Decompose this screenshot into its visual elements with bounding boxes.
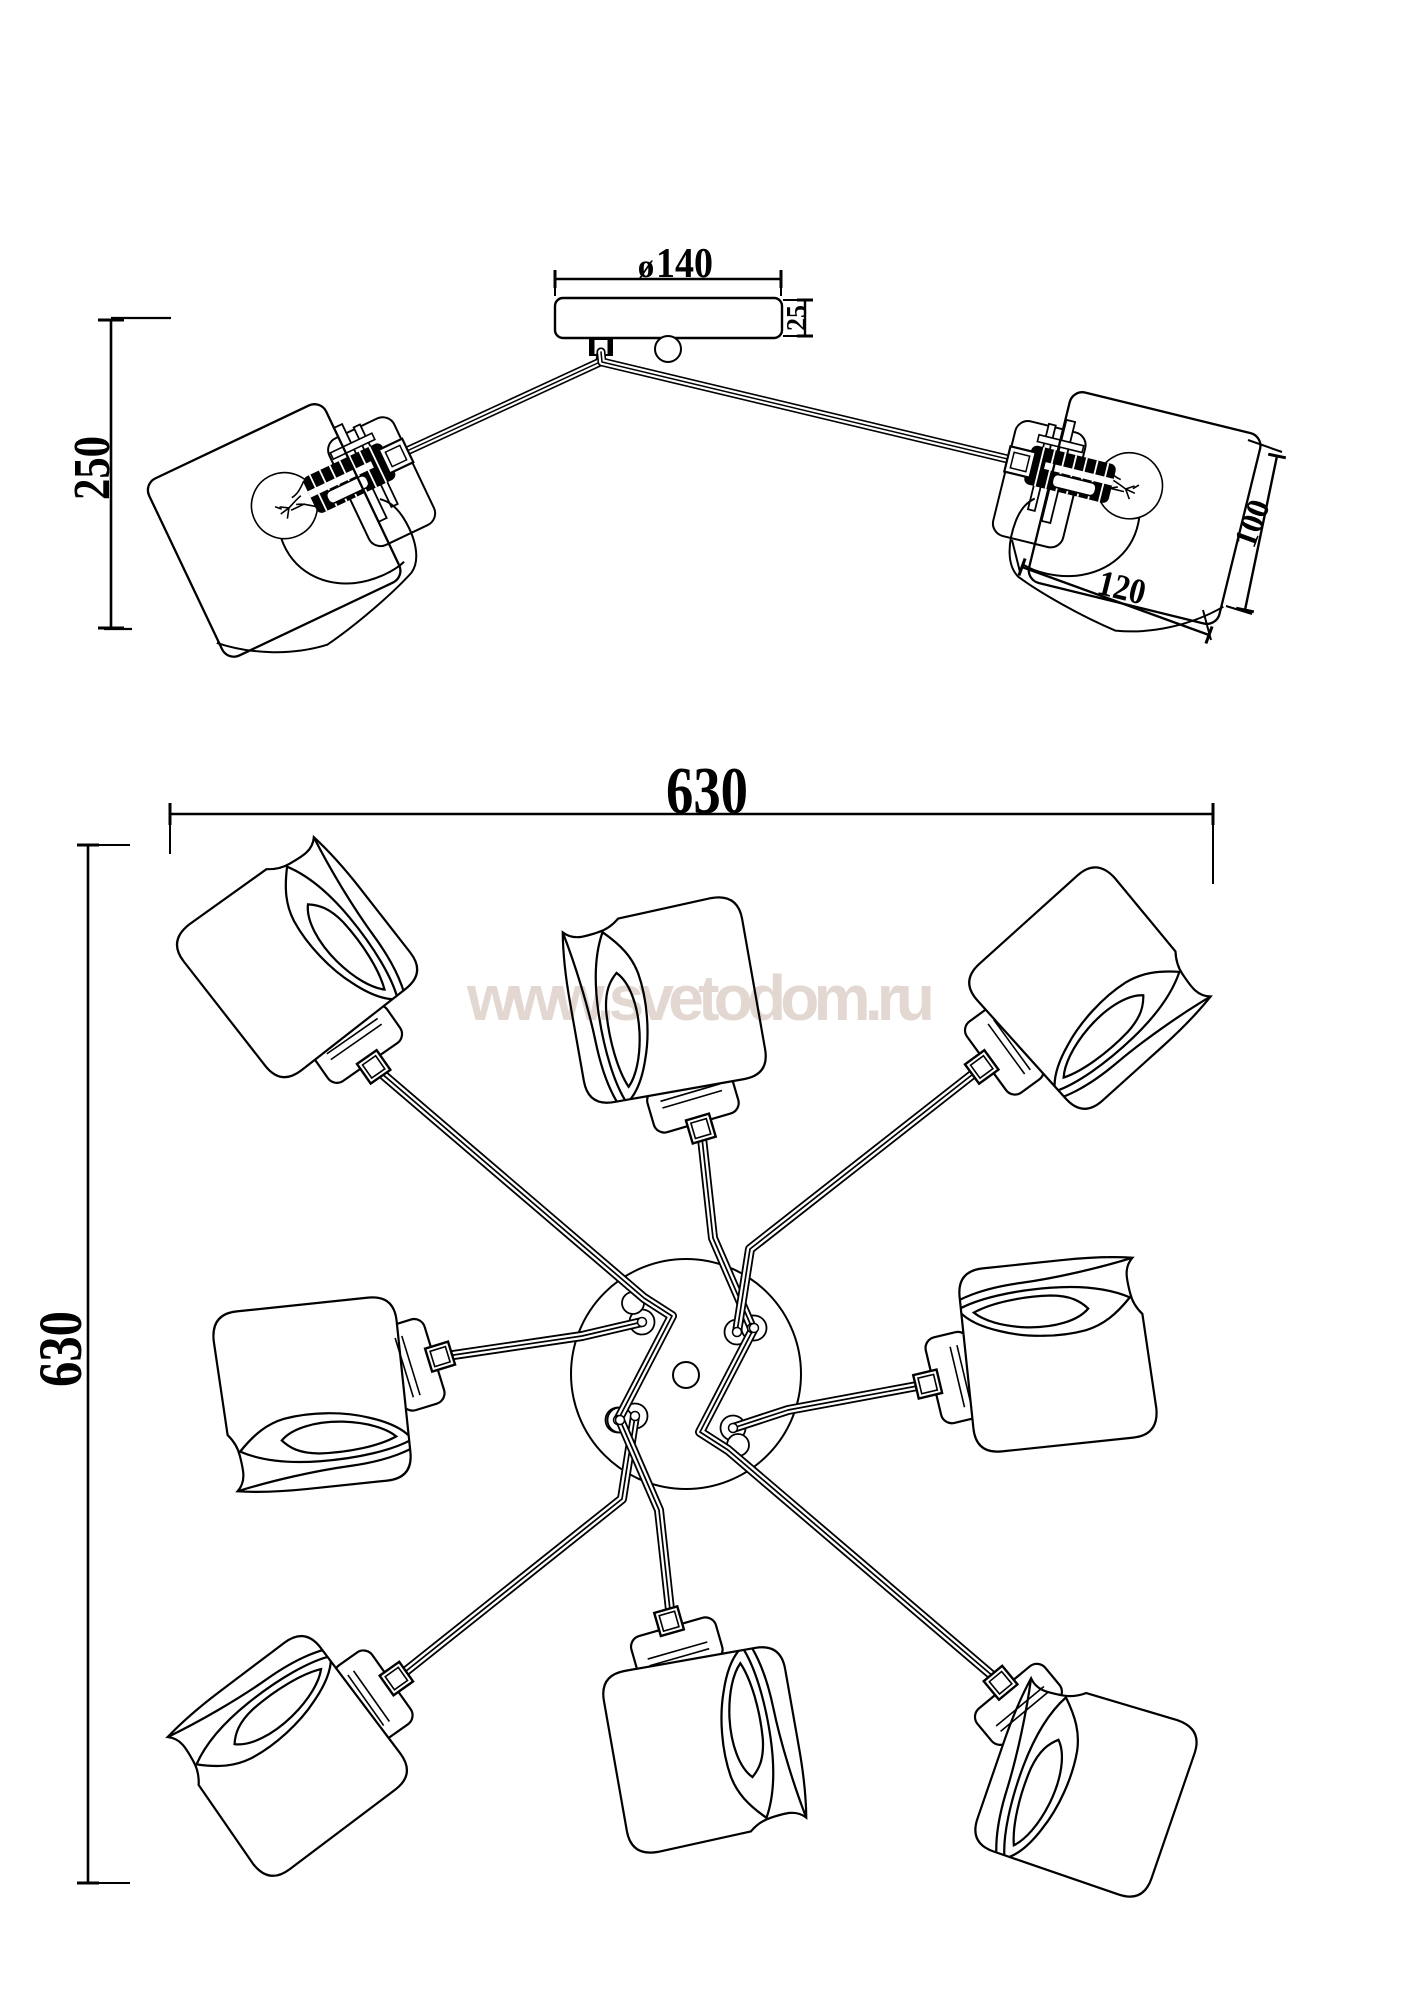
- svg-text:25: 25: [781, 305, 813, 331]
- svg-text:630: 630: [666, 754, 748, 828]
- svg-text:140: 140: [656, 241, 713, 287]
- svg-text:630: 630: [28, 1311, 95, 1387]
- svg-text:ø: ø: [638, 249, 655, 285]
- svg-text:250: 250: [64, 436, 121, 500]
- svg-text:www.svetodom.ru: www.svetodom.ru: [466, 962, 935, 1034]
